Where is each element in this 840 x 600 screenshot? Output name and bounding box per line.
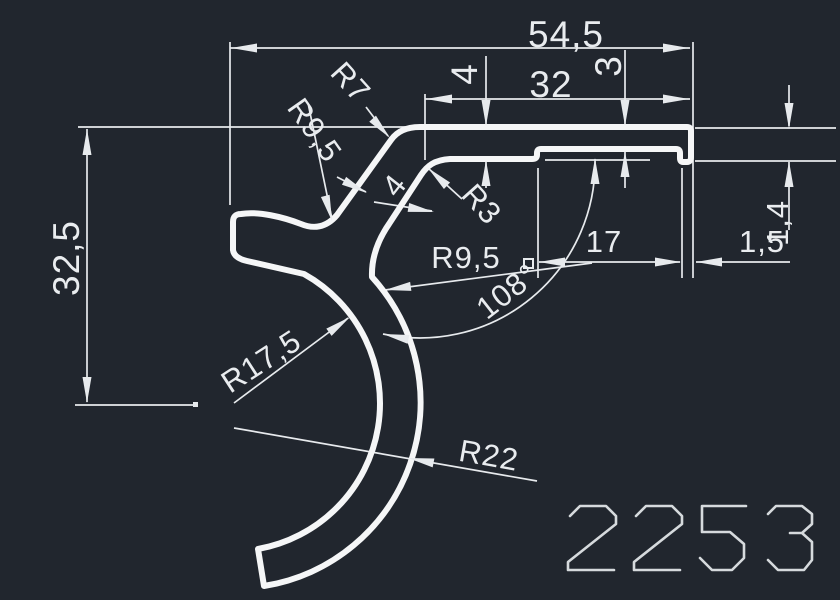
arrowhead [428,168,450,189]
technical-drawing: 54,5 32 4 3 32,5 17 1,5 1,4 108° R7 R9,5… [0,0,840,600]
cad-canvas: 54,5 32 4 3 32,5 17 1,5 1,4 108° R7 R9,5… [0,0,840,600]
flange-thickness-right-label: 3 [588,55,629,77]
total-height-label: 32,5 [46,220,87,296]
arrowhead [785,103,794,129]
arrowhead [621,151,630,177]
arrowhead [785,161,794,187]
part-number-digit [768,506,812,570]
top-flange-width-label: 32 [529,64,572,105]
fillet-r95-outer-label: R9,5 [280,92,349,169]
arrowhead [326,317,350,336]
arrowhead [696,258,722,267]
part-number-digit [568,506,616,570]
hook-inner-radius-label: R17,5 [215,323,308,400]
arrowhead [539,258,565,267]
fillet-r7-label: R7 [324,55,378,109]
part-number-digit [700,506,746,570]
arrowhead [321,195,332,221]
arrowhead [591,158,600,184]
lip-height-label: 1,4 [760,200,795,246]
flange-thickness-left-label: 4 [444,63,485,85]
arrowhead [231,44,257,53]
arrowhead [426,95,452,104]
total-width-label: 54,5 [528,14,604,55]
arrowhead [385,282,411,291]
part-number [568,506,812,570]
arrowhead [482,100,491,126]
arrowhead [663,44,689,53]
hook-outer-radius-label: R22 [456,433,521,478]
arrowhead [83,377,92,403]
arrowhead [655,258,681,267]
arrowhead [83,129,92,155]
arrowhead [408,203,434,212]
arrowhead [383,334,409,344]
part-number-digit [634,506,682,570]
recess-width-label: 17 [586,224,622,259]
extension-end-dot [193,402,198,407]
arrowhead [663,95,689,104]
fillet-r95-inner-label: R9,5 [431,240,500,275]
arrowhead [621,100,630,126]
fillet-r3-label: R3 [455,177,509,231]
